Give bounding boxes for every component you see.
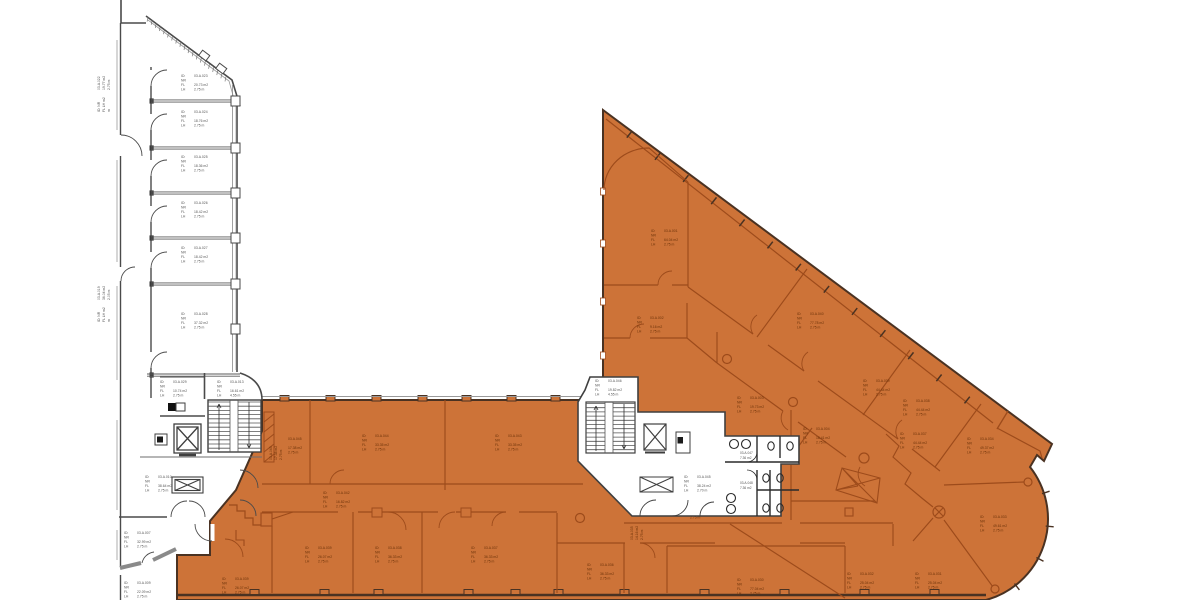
svg-text:LH: LH: [305, 560, 310, 564]
svg-text:4.55 m: 4.55 m: [608, 393, 619, 397]
svg-text:NR: NR: [217, 385, 222, 389]
svg-text:03.A.004: 03.A.004: [816, 427, 830, 431]
svg-text:49.37 m2: 49.37 m2: [980, 446, 994, 450]
svg-text:LH: LH: [160, 394, 165, 398]
svg-text:26.07 m2: 26.07 m2: [235, 586, 249, 590]
svg-text:ID:: ID:: [323, 491, 327, 495]
svg-text:2.75 m: 2.75 m: [194, 88, 205, 92]
svg-text:03.A.002: 03.A.002: [650, 316, 664, 320]
svg-text:FL: FL: [305, 555, 309, 559]
svg-text:2.75 m: 2.75 m: [876, 393, 887, 397]
svg-text:NR: NR: [181, 251, 186, 255]
svg-text:ID:: ID:: [967, 437, 971, 441]
svg-text:19.82 m2: 19.82 m2: [608, 388, 622, 392]
svg-text:03.A.040: 03.A.040: [810, 312, 824, 316]
svg-text:2.75 m: 2.75 m: [158, 489, 169, 493]
svg-text:ID:: ID:: [903, 399, 907, 403]
svg-text:18.36 m2: 18.36 m2: [194, 164, 208, 168]
svg-text:LH: LH: [471, 560, 476, 564]
svg-text:2.75 m: 2.75 m: [388, 560, 399, 564]
svg-text:03.A.039: 03.A.039: [318, 546, 332, 550]
svg-text:2.75 m: 2.75 m: [279, 449, 283, 460]
svg-text:ID:: ID:: [145, 475, 149, 479]
svg-text:25.04 m2: 25.04 m2: [928, 581, 942, 585]
svg-text:36.33 m2: 36.33 m2: [600, 572, 614, 576]
svg-text:03.A.037: 03.A.037: [913, 432, 927, 436]
svg-text:03.A.009: 03.A.009: [137, 581, 151, 585]
svg-text:03.A.033: 03.A.033: [993, 515, 1007, 519]
svg-text:2.75 m: 2.75 m: [650, 330, 661, 334]
svg-text:NR: NR: [124, 536, 129, 540]
svg-text:FL: FL: [967, 446, 971, 450]
svg-text:FL: FL: [900, 441, 904, 445]
svg-text:ID:: ID:: [637, 316, 641, 320]
svg-text:2.75 m: 2.75 m: [750, 410, 761, 414]
svg-text:FL: FL: [217, 389, 221, 393]
svg-text:ID:: ID:: [684, 475, 688, 479]
svg-text:ID:: ID:: [305, 546, 309, 550]
svg-text:03.A.045: 03.A.045: [697, 475, 711, 479]
svg-text:2.75 m: 2.75 m: [137, 545, 148, 549]
svg-text:2.75 m: 2.75 m: [235, 591, 246, 595]
svg-text:03.A.029: 03.A.029: [173, 380, 187, 384]
svg-text:03.A.028: 03.A.028: [194, 312, 208, 316]
svg-text:2.75 m: 2.75 m: [107, 79, 111, 90]
svg-text:ID:: ID:: [595, 379, 599, 383]
svg-text:18.42 m2: 18.42 m2: [194, 210, 208, 214]
svg-text:FL: FL: [495, 443, 499, 447]
svg-text:ID:: ID:: [980, 515, 984, 519]
svg-text:LH: LH: [124, 545, 129, 549]
svg-text:ID:: ID:: [587, 563, 591, 567]
svg-text:NR: NR: [903, 404, 908, 408]
svg-text:19.73 m2: 19.73 m2: [750, 405, 764, 409]
svg-text:FL: FL: [181, 119, 185, 123]
svg-text:LH: LH: [863, 393, 868, 397]
svg-text:ID:: ID:: [124, 581, 128, 585]
svg-text:2.75 m: 2.75 m: [816, 441, 827, 445]
svg-text:ID:: ID:: [797, 312, 801, 316]
svg-text:03.A.024: 03.A.024: [194, 110, 208, 114]
svg-text:2.75 m: 2.75 m: [600, 577, 611, 581]
svg-text:2.75 m: 2.75 m: [508, 448, 519, 452]
svg-text:03.A.031: 03.A.031: [928, 572, 942, 576]
svg-text:20.73 m2: 20.73 m2: [194, 83, 208, 87]
svg-text:LH: LH: [181, 88, 186, 92]
svg-text:LH: LH: [222, 591, 227, 595]
svg-text:LH: LH: [637, 330, 642, 334]
svg-text:LH: LH: [803, 441, 808, 445]
svg-text:ID:: ID:: [181, 246, 185, 250]
svg-text:03.A.038: 03.A.038: [388, 546, 402, 550]
svg-text:FL: FL: [323, 500, 327, 504]
svg-text:03.A.025: 03.A.025: [194, 155, 208, 159]
svg-text:ID:: ID:: [737, 578, 741, 582]
svg-text:7.36 m2: 7.36 m2: [740, 486, 752, 490]
svg-text:ID: NR: ID: NR: [97, 101, 101, 112]
svg-text:FL: FL: [587, 572, 591, 576]
svg-text:03.A.037: 03.A.037: [484, 546, 498, 550]
svg-text:ID:: ID:: [124, 531, 128, 535]
svg-text:03.A.010: 03.A.010: [158, 475, 172, 479]
svg-text:FL: FL: [124, 540, 128, 544]
svg-text:ID:: ID:: [495, 434, 499, 438]
svg-text:18.76 m2: 18.76 m2: [194, 119, 208, 123]
svg-text:m: m: [107, 319, 111, 322]
svg-text:ID:: ID:: [181, 155, 185, 159]
svg-text:2.75 m: 2.75 m: [640, 529, 644, 540]
svg-text:LH: LH: [900, 446, 905, 450]
svg-text:NR: NR: [160, 385, 165, 389]
svg-text:2.75 m: 2.75 m: [810, 326, 821, 330]
svg-text:LH: LH: [181, 169, 186, 173]
svg-text:2.75 m: 2.75 m: [336, 505, 347, 509]
svg-text:FL LH m2: FL LH m2: [102, 307, 106, 322]
svg-text:2.75 m: 2.75 m: [318, 560, 329, 564]
svg-text:LH: LH: [145, 489, 150, 493]
svg-text:FL: FL: [181, 164, 185, 168]
svg-text:FL: FL: [737, 405, 741, 409]
svg-text:03.A.047: 03.A.047: [740, 451, 753, 455]
svg-text:NR: NR: [181, 160, 186, 164]
svg-text:NR: NR: [980, 520, 985, 524]
svg-text:NR: NR: [803, 432, 808, 436]
svg-text:LH: LH: [847, 586, 852, 590]
svg-text:19.77 m2: 19.77 m2: [102, 76, 106, 90]
svg-text:FL LH m2: FL LH m2: [102, 97, 106, 112]
svg-text:2.75 m: 2.75 m: [194, 326, 205, 330]
svg-text:ID:: ID:: [915, 572, 919, 576]
svg-text:03.A.003: 03.A.003: [750, 396, 764, 400]
svg-text:03.A.042: 03.A.042: [336, 491, 350, 495]
svg-text:NR: NR: [967, 442, 972, 446]
svg-text:NR: NR: [495, 439, 500, 443]
svg-text:FL: FL: [362, 443, 366, 447]
svg-text:ID:: ID:: [181, 110, 185, 114]
svg-text:03.A.036: 03.A.036: [600, 563, 614, 567]
svg-text:LH: LH: [323, 505, 328, 509]
svg-text:ID: NR: ID: NR: [97, 311, 101, 322]
svg-text:NR: NR: [362, 439, 367, 443]
svg-text:FL: FL: [375, 555, 379, 559]
svg-text:LH: LH: [124, 595, 129, 599]
svg-text:2.75 m: 2.75 m: [194, 169, 205, 173]
svg-text:38.24 m2: 38.24 m2: [697, 484, 711, 488]
svg-text:LH: LH: [181, 124, 186, 128]
svg-text:36.33 m2: 36.33 m2: [484, 555, 498, 559]
svg-text:44.44 m2: 44.44 m2: [913, 441, 927, 445]
svg-text:FL: FL: [637, 325, 641, 329]
svg-text:LH: LH: [737, 592, 742, 596]
svg-text:NR: NR: [305, 551, 310, 555]
svg-text:NR: NR: [222, 582, 227, 586]
svg-text:FL: FL: [980, 524, 984, 528]
svg-text:03.A.039: 03.A.039: [235, 577, 249, 581]
svg-text:ID:: ID:: [181, 312, 185, 316]
svg-text:03.A.007: 03.A.007: [137, 531, 151, 535]
svg-text:77.78 m2: 77.78 m2: [810, 321, 824, 325]
svg-text:ID:: ID:: [900, 432, 904, 436]
svg-text:NR: NR: [471, 551, 476, 555]
svg-text:33.35 m2: 33.35 m2: [375, 443, 389, 447]
svg-text:2.75 m: 2.75 m: [484, 560, 495, 564]
svg-text:NR: NR: [181, 115, 186, 119]
svg-text:44.44 m2: 44.44 m2: [876, 388, 890, 392]
svg-text:03.A.048: 03.A.048: [740, 481, 753, 485]
svg-text:26.07 m2: 26.07 m2: [318, 555, 332, 559]
svg-text:FL: FL: [181, 83, 185, 87]
svg-text:LH: LH: [980, 529, 985, 533]
svg-text:38.64 m2: 38.64 m2: [158, 484, 172, 488]
svg-text:ID:: ID:: [362, 434, 366, 438]
svg-text:2.75 m: 2.75 m: [860, 586, 871, 590]
svg-text:16.61 m2: 16.61 m2: [230, 389, 244, 393]
svg-text:2.75 m: 2.75 m: [993, 529, 1004, 533]
svg-text:ID:: ID:: [803, 427, 807, 431]
svg-text:NR: NR: [323, 496, 328, 500]
svg-text:2.75 m: 2.75 m: [375, 448, 386, 452]
svg-text:2.05 m: 2.05 m: [107, 289, 111, 300]
svg-text:NR: NR: [181, 79, 186, 83]
svg-text:FL: FL: [222, 586, 226, 590]
svg-text:NR: NR: [637, 321, 642, 325]
svg-text:44.44 m2: 44.44 m2: [916, 408, 930, 412]
svg-text:ID:: ID:: [737, 396, 741, 400]
svg-text:4.55 m: 4.55 m: [230, 394, 241, 398]
svg-text:37.32 m2: 37.32 m2: [194, 321, 208, 325]
svg-text:NR: NR: [587, 568, 592, 572]
svg-text:FL: FL: [803, 436, 807, 440]
svg-text:FL: FL: [903, 408, 907, 412]
svg-text:ID:: ID:: [181, 201, 185, 205]
svg-text:FL: FL: [124, 590, 128, 594]
svg-text:2.75 m: 2.75 m: [194, 124, 205, 128]
svg-text:ID:: ID:: [471, 546, 475, 550]
svg-text:FL: FL: [847, 581, 851, 585]
svg-text:25.04 m2: 25.04 m2: [860, 581, 874, 585]
svg-text:36.04 m2: 36.04 m2: [102, 286, 106, 300]
svg-text:49.61 m2: 49.61 m2: [993, 524, 1007, 528]
svg-text:2.75 m: 2.75 m: [750, 592, 761, 596]
svg-text:FL: FL: [651, 238, 655, 242]
svg-text:36.33 m2: 36.33 m2: [388, 555, 402, 559]
svg-text:ID:: ID:: [375, 546, 379, 550]
svg-text:77.04 m2: 77.04 m2: [750, 587, 764, 591]
svg-text:LH: LH: [181, 326, 186, 330]
svg-text:03.A.027: 03.A.027: [194, 246, 208, 250]
svg-text:FL: FL: [863, 388, 867, 392]
svg-text:m: m: [107, 109, 111, 112]
svg-text:03.A.001: 03.A.001: [664, 229, 678, 233]
svg-text:2.75 m: 2.75 m: [913, 446, 924, 450]
svg-text:FL: FL: [181, 210, 185, 214]
svg-text:03.A.032: 03.A.032: [860, 572, 874, 576]
svg-text:LH: LH: [737, 410, 742, 414]
svg-text:2.75 m: 2.75 m: [664, 243, 675, 247]
svg-text:LH: LH: [181, 260, 186, 264]
svg-text:32.99 m2: 32.99 m2: [137, 540, 151, 544]
svg-text:FL: FL: [181, 255, 185, 259]
svg-text:14.16 m2: 14.16 m2: [635, 526, 639, 540]
svg-text:NR: NR: [145, 480, 150, 484]
svg-text:16.82 m2: 16.82 m2: [336, 500, 350, 504]
svg-text:NR: NR: [375, 551, 380, 555]
svg-text:18.42 m2: 18.42 m2: [194, 255, 208, 259]
svg-text:ID:: ID:: [863, 379, 867, 383]
svg-text:64.04 m2: 64.04 m2: [664, 238, 678, 242]
svg-text:2.70 m: 2.70 m: [697, 489, 708, 493]
svg-text:7.36 m2: 7.36 m2: [740, 456, 752, 460]
svg-text:NR: NR: [181, 206, 186, 210]
svg-text:03.A.044: 03.A.044: [375, 434, 389, 438]
svg-text:FL: FL: [145, 484, 149, 488]
svg-text:NR: NR: [684, 480, 689, 484]
svg-text:FL: FL: [915, 581, 919, 585]
svg-text:10.74 m2: 10.74 m2: [173, 389, 187, 393]
svg-text:FL: FL: [797, 321, 801, 325]
svg-text:LH: LH: [684, 489, 689, 493]
svg-text:LH: LH: [651, 243, 656, 247]
svg-text:ID:: ID:: [847, 572, 851, 576]
svg-text:NR: NR: [797, 317, 802, 321]
svg-text:03.A.039: 03.A.039: [876, 379, 890, 383]
svg-text:03.A.046: 03.A.046: [608, 379, 622, 383]
svg-text:03.A.043: 03.A.043: [508, 434, 522, 438]
svg-text:03.A.045: 03.A.045: [288, 437, 302, 441]
svg-text:2.75 m: 2.75 m: [928, 586, 939, 590]
svg-text:NR: NR: [863, 384, 868, 388]
svg-text:LH: LH: [797, 326, 802, 330]
svg-text:NR: NR: [737, 583, 742, 587]
svg-text:2.75 m: 2.75 m: [288, 451, 299, 455]
svg-text:FL: FL: [471, 555, 475, 559]
svg-text:LH: LH: [903, 413, 908, 417]
svg-text:LH: LH: [587, 577, 592, 581]
svg-text:03.A.013: 03.A.013: [230, 380, 244, 384]
svg-text:ID:: ID:: [181, 74, 185, 78]
svg-text:FL: FL: [684, 484, 688, 488]
svg-text:ID:: ID:: [160, 380, 164, 384]
svg-text:03.A.038: 03.A.038: [916, 399, 930, 403]
svg-text:NR: NR: [847, 577, 852, 581]
svg-text:2.75 m: 2.75 m: [194, 215, 205, 219]
svg-text:FL: FL: [160, 389, 164, 393]
svg-text:17.38 m2: 17.38 m2: [274, 446, 278, 460]
svg-text:03.A.034: 03.A.034: [980, 437, 994, 441]
svg-text:03.A.035: 03.A.035: [630, 526, 634, 540]
svg-text:LH: LH: [495, 448, 500, 452]
svg-text:LH: LH: [967, 451, 972, 455]
svg-text:03.A.030: 03.A.030: [750, 578, 764, 582]
svg-text:2.75 m: 2.75 m: [980, 451, 991, 455]
svg-text:FL: FL: [737, 587, 741, 591]
svg-text:17.38 m2: 17.38 m2: [288, 446, 302, 450]
svg-text:NR: NR: [181, 317, 186, 321]
svg-text:ID:: ID:: [651, 229, 655, 233]
svg-text:NR: NR: [651, 234, 656, 238]
svg-text:LH: LH: [362, 448, 367, 452]
svg-text:LH: LH: [181, 215, 186, 219]
svg-text:18.41 m2: 18.41 m2: [816, 436, 830, 440]
svg-text:2.75 m: 2.75 m: [916, 413, 927, 417]
svg-text:NR: NR: [737, 401, 742, 405]
svg-text:03.A.026: 03.A.026: [194, 201, 208, 205]
svg-text:ID:: ID:: [217, 380, 221, 384]
svg-text:03.A.022: 03.A.022: [97, 76, 101, 90]
svg-text:NR: NR: [124, 586, 129, 590]
svg-text:NR: NR: [900, 437, 905, 441]
svg-text:NR: NR: [595, 384, 600, 388]
svg-text:2.75 m: 2.75 m: [194, 260, 205, 264]
svg-text:03.A.023: 03.A.023: [194, 74, 208, 78]
svg-text:FL: FL: [595, 388, 599, 392]
svg-text:NR: NR: [915, 577, 920, 581]
svg-text:LH: LH: [217, 394, 222, 398]
svg-text:2.75 m: 2.75 m: [173, 394, 184, 398]
svg-text:ID:: ID:: [222, 577, 226, 581]
svg-text:2.75 m: 2.75 m: [137, 595, 148, 599]
svg-text:03.A.045: 03.A.045: [269, 446, 273, 460]
svg-text:LH: LH: [375, 560, 380, 564]
svg-text:LH: LH: [595, 393, 600, 397]
svg-text:22.09 m2: 22.09 m2: [137, 590, 151, 594]
svg-text:FL: FL: [181, 321, 185, 325]
svg-text:LH: LH: [915, 586, 920, 590]
svg-text:9.16 m2: 9.16 m2: [650, 325, 662, 329]
svg-text:03.A.019: 03.A.019: [97, 286, 101, 300]
svg-text:33.35 m2: 33.35 m2: [508, 443, 522, 447]
